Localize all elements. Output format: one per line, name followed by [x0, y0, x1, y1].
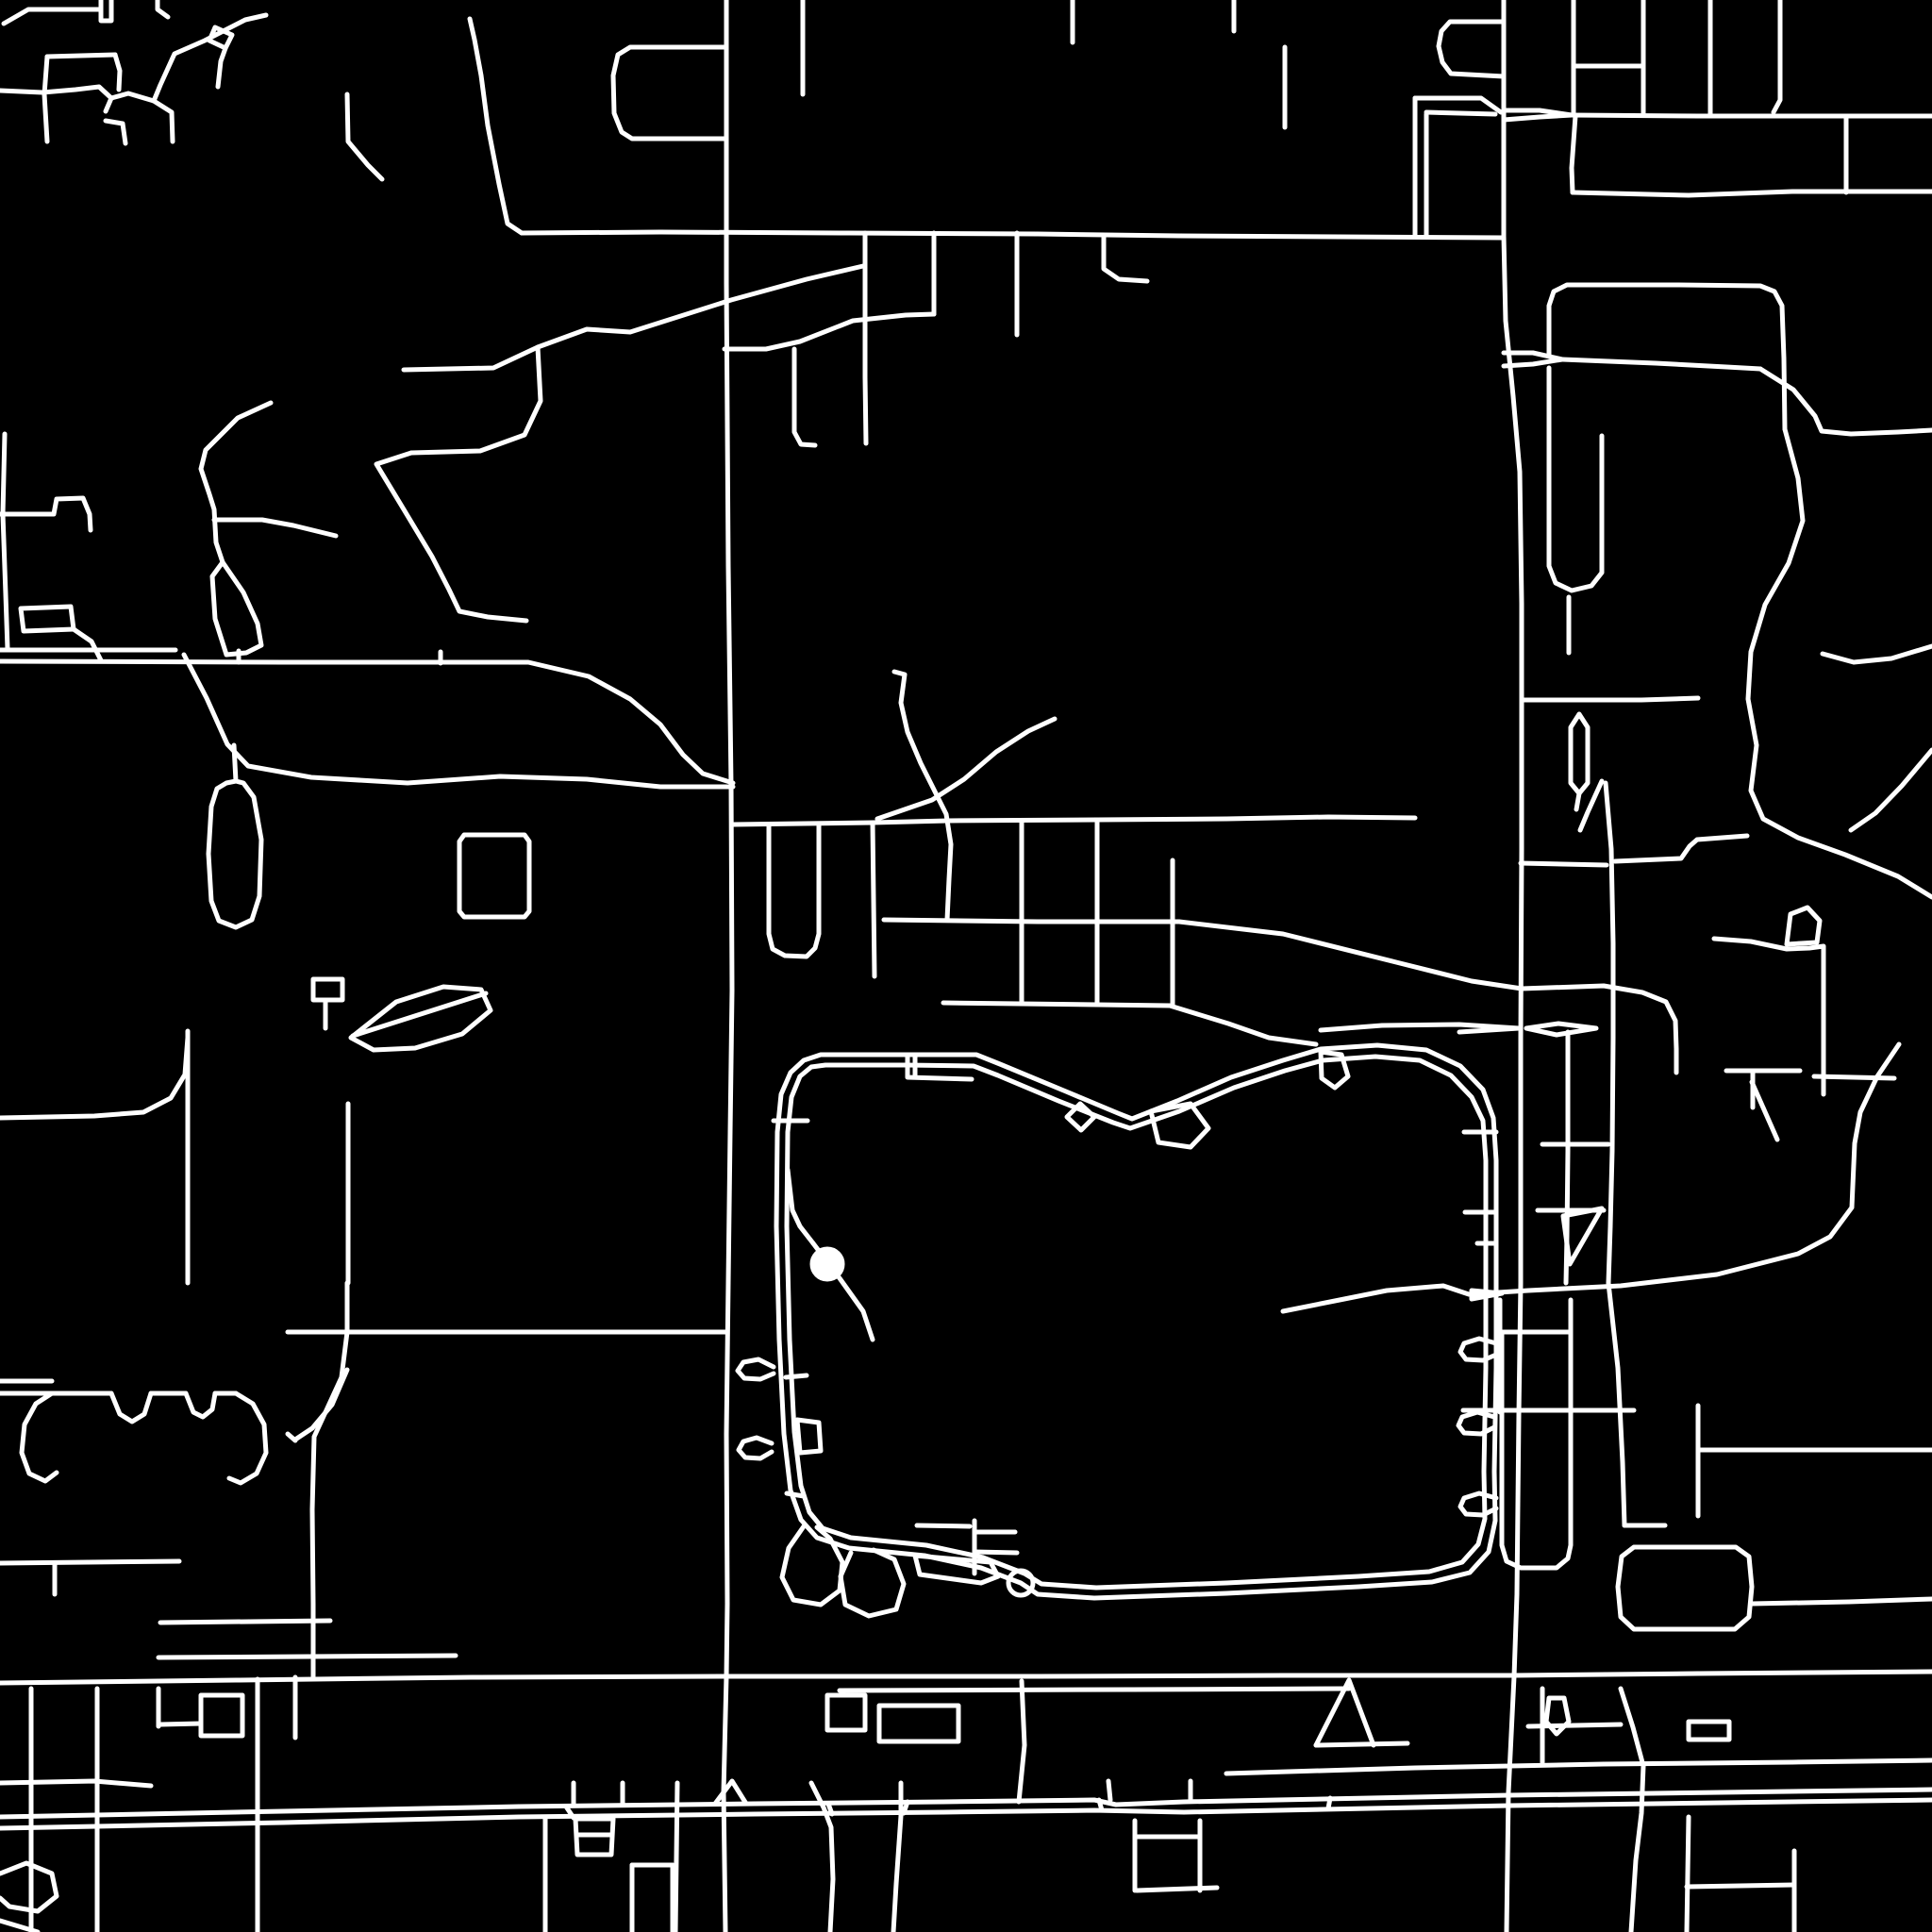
- road: [827, 1695, 865, 1730]
- road: [201, 1695, 242, 1736]
- road: [74, 629, 101, 660]
- road: [893, 1783, 901, 1932]
- road: [724, 0, 732, 1932]
- road: [459, 835, 529, 917]
- road: [470, 19, 522, 233]
- road: [840, 1689, 1349, 1690]
- road: [1774, 0, 1780, 112]
- road: [0, 87, 111, 111]
- road: [106, 121, 125, 143]
- road: [733, 817, 1415, 824]
- road: [1687, 1885, 1794, 1887]
- road: [208, 745, 261, 927]
- road: [1576, 793, 1579, 809]
- road: [1851, 750, 1932, 830]
- road: [21, 607, 74, 631]
- roads-layer: [0, 0, 1932, 1932]
- road: [158, 0, 168, 17]
- road: [160, 1621, 330, 1623]
- street-map-svg: [0, 0, 1932, 1932]
- road: [212, 562, 261, 655]
- road: [1502, 1332, 1571, 1568]
- road: [917, 1525, 970, 1526]
- road: [865, 233, 866, 443]
- road: [1823, 646, 1932, 662]
- road: [1504, 115, 1572, 120]
- road: [1316, 1743, 1407, 1745]
- road: [1522, 698, 1698, 700]
- road: [1549, 285, 1785, 429]
- road: [1571, 714, 1588, 793]
- road: [1226, 1760, 1932, 1774]
- road: [1426, 112, 1495, 114]
- road: [44, 57, 47, 142]
- road: [313, 979, 342, 1000]
- road: [411, 347, 541, 453]
- road: [877, 719, 1055, 819]
- road: [884, 920, 1522, 989]
- road: [201, 403, 271, 562]
- road: [1108, 1781, 1110, 1800]
- map-viewport[interactable]: [0, 0, 1932, 1932]
- road: [0, 1561, 179, 1563]
- road: [0, 498, 91, 530]
- road: [794, 349, 815, 445]
- road: [1504, 359, 1562, 366]
- road: [841, 1550, 904, 1616]
- road: [675, 1783, 677, 1932]
- roundabout: [812, 1249, 842, 1279]
- road: [1458, 1412, 1494, 1434]
- road: [1528, 1724, 1621, 1726]
- road: [22, 1393, 57, 1481]
- road: [1522, 986, 1676, 1073]
- road: [186, 1393, 215, 1417]
- road: [974, 1552, 1017, 1553]
- road: [1099, 1800, 1102, 1810]
- road: [1019, 1681, 1024, 1802]
- road: [1460, 1339, 1496, 1360]
- road: [0, 1863, 57, 1911]
- road: [738, 1359, 774, 1379]
- road: [879, 1706, 958, 1741]
- road: [1752, 1082, 1777, 1140]
- road: [797, 1420, 821, 1453]
- road: [160, 1724, 201, 1724]
- road: [0, 661, 733, 783]
- road: [214, 520, 336, 536]
- road: [522, 232, 1504, 238]
- road: [101, 0, 111, 21]
- road: [154, 101, 173, 142]
- road: [1787, 908, 1820, 944]
- road: [111, 1393, 151, 1422]
- road: [111, 93, 154, 101]
- road: [376, 453, 526, 621]
- road: [1439, 22, 1504, 76]
- road: [1752, 1599, 1932, 1604]
- road: [312, 1283, 347, 1676]
- road: [1814, 1076, 1894, 1078]
- road: [1521, 863, 1607, 865]
- road: [1618, 1547, 1752, 1629]
- road: [788, 1170, 813, 1243]
- road: [613, 47, 724, 139]
- road: [0, 1672, 1932, 1683]
- road: [4, 9, 101, 24]
- road: [1504, 0, 1522, 1932]
- road: [1572, 115, 1932, 116]
- road: [288, 1434, 295, 1441]
- road: [1748, 429, 1932, 897]
- road: [1460, 1493, 1496, 1515]
- road: [873, 823, 874, 976]
- road: [1687, 1817, 1689, 1932]
- road: [218, 48, 225, 87]
- road: [1137, 1888, 1217, 1890]
- road: [1328, 1798, 1330, 1808]
- road: [1615, 836, 1747, 861]
- road: [769, 824, 819, 957]
- road: [1573, 192, 1932, 195]
- road: [943, 1003, 1316, 1044]
- road: [115, 55, 120, 90]
- road: [184, 655, 733, 787]
- road: [0, 1038, 188, 1118]
- road: [154, 15, 266, 101]
- road: [1283, 1044, 1899, 1311]
- road: [1526, 1024, 1596, 1035]
- road: [1549, 368, 1602, 591]
- road: [1562, 359, 1760, 369]
- road: [787, 1057, 1486, 1588]
- road: [1606, 783, 1624, 1525]
- road: [782, 1526, 842, 1605]
- road: [0, 1781, 151, 1786]
- road: [1104, 236, 1147, 281]
- road: [1459, 1028, 1519, 1032]
- road: [1572, 116, 1575, 192]
- road: [786, 1375, 807, 1377]
- road: [1621, 1689, 1643, 1932]
- road: [3, 434, 8, 649]
- road: [739, 1438, 772, 1458]
- road: [787, 1493, 804, 1496]
- road: [1546, 1698, 1569, 1734]
- road: [1689, 1722, 1729, 1740]
- road: [347, 94, 382, 179]
- road: [724, 314, 934, 349]
- road: [158, 1656, 456, 1657]
- road: [229, 1393, 266, 1483]
- road: [47, 55, 115, 57]
- road: [715, 1781, 746, 1804]
- road: [1504, 353, 1562, 359]
